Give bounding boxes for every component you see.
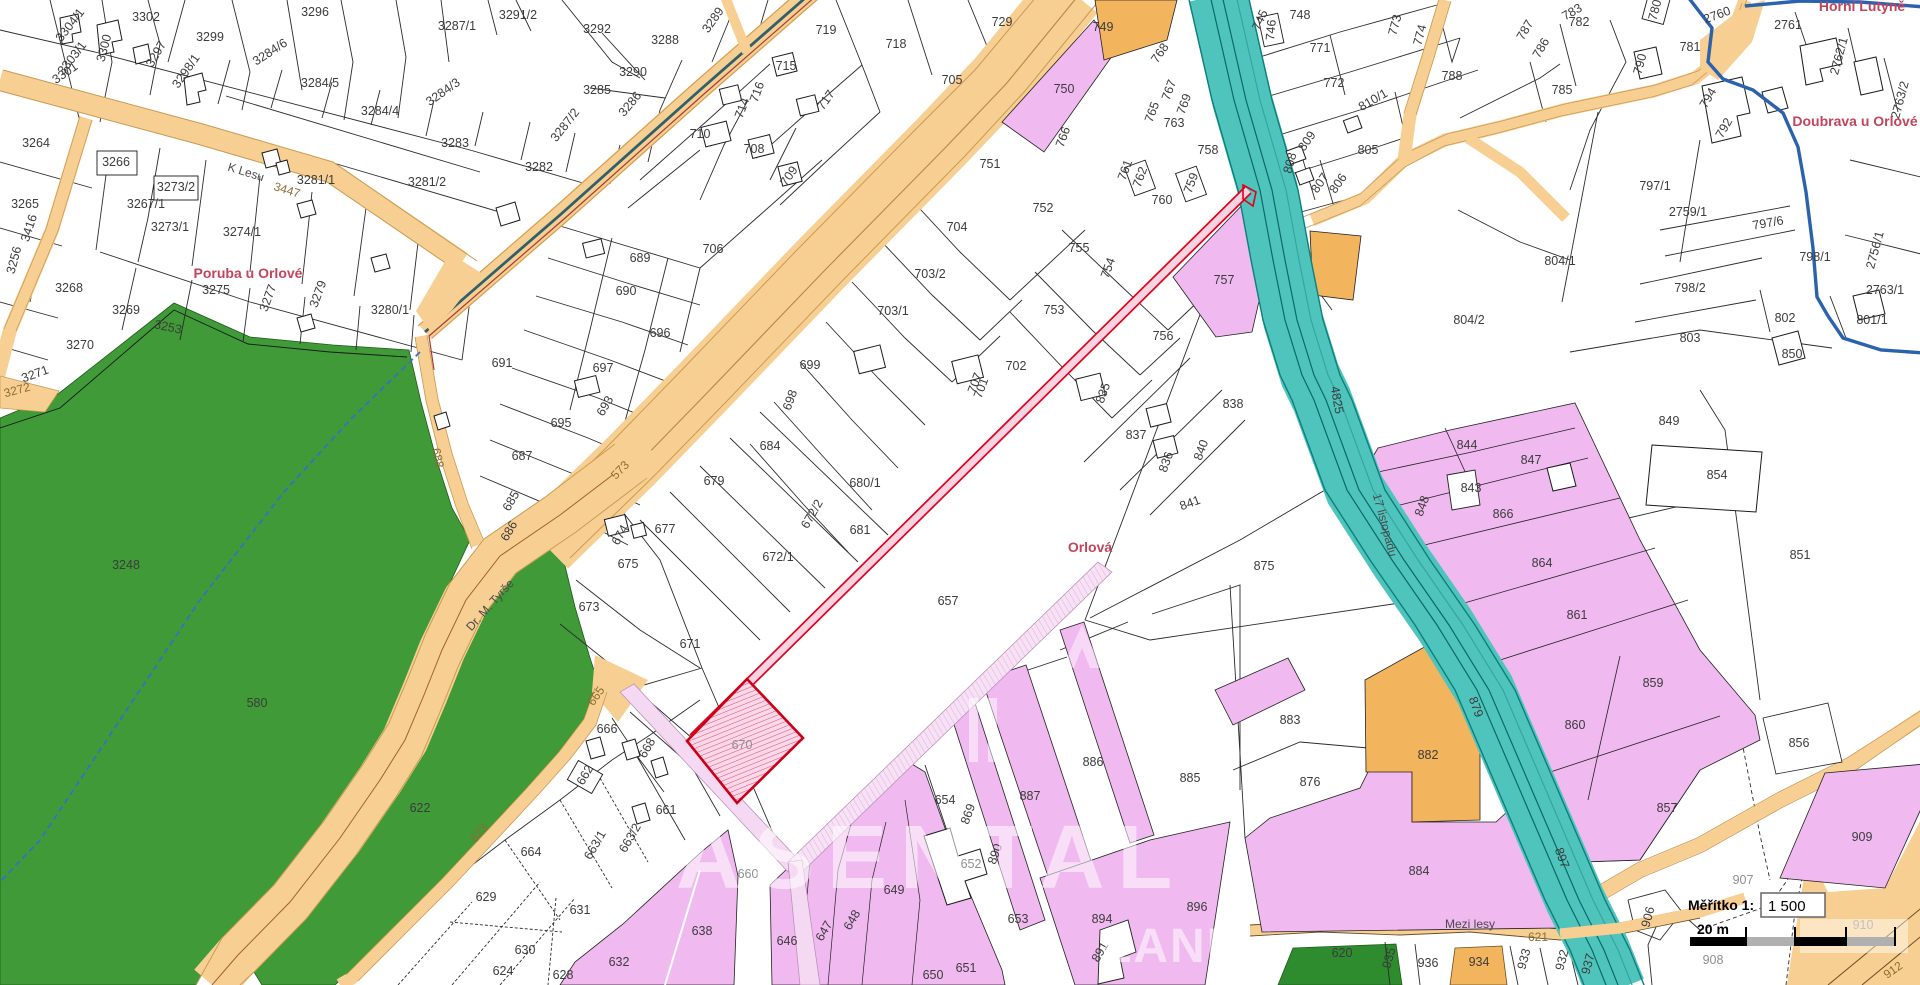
svg-text:ASENTAL: ASENTAL [676, 808, 1185, 908]
svg-text:719: 719 [816, 23, 837, 37]
svg-text:882: 882 [1418, 748, 1439, 762]
svg-text:657: 657 [938, 594, 959, 608]
svg-text:838: 838 [1223, 397, 1244, 411]
svg-text:843: 843 [1461, 481, 1482, 495]
svg-text:Mezi lesy: Mezi lesy [1445, 917, 1495, 931]
svg-text:691: 691 [492, 356, 513, 370]
svg-text:3267/1: 3267/1 [127, 197, 165, 211]
svg-text:753: 753 [1044, 303, 1065, 317]
svg-text:781: 781 [1680, 40, 1701, 54]
svg-text:3292: 3292 [583, 22, 611, 36]
svg-text:3302: 3302 [132, 10, 160, 24]
svg-text:804/2: 804/2 [1453, 313, 1484, 327]
svg-text:LAND: LAND [1102, 920, 1243, 973]
svg-text:3274/1: 3274/1 [223, 225, 261, 239]
svg-text:896: 896 [1187, 900, 1208, 914]
svg-text:748: 748 [1290, 8, 1311, 22]
svg-text:687: 687 [512, 449, 533, 463]
svg-text:3270: 3270 [66, 338, 94, 352]
svg-text:651: 651 [956, 961, 977, 975]
svg-text:621: 621 [1528, 930, 1548, 944]
svg-text:750: 750 [1054, 82, 1075, 96]
svg-text:3288: 3288 [651, 33, 679, 47]
svg-text:680/1: 680/1 [849, 476, 880, 490]
svg-text:3296: 3296 [301, 5, 329, 19]
svg-text:860: 860 [1565, 718, 1586, 732]
svg-text:798/2: 798/2 [1674, 281, 1705, 295]
svg-text:844: 844 [1457, 438, 1478, 452]
svg-text:3273/1: 3273/1 [151, 220, 189, 234]
svg-text:3265: 3265 [11, 197, 39, 211]
svg-text:3280/1: 3280/1 [371, 303, 409, 317]
svg-text:805: 805 [1358, 143, 1379, 157]
svg-text:3269: 3269 [112, 303, 140, 317]
svg-text:677: 677 [655, 522, 676, 536]
svg-text:851: 851 [1790, 548, 1811, 562]
svg-text:802: 802 [1775, 311, 1796, 325]
svg-text:3291/2: 3291/2 [499, 8, 537, 22]
svg-text:650: 650 [923, 968, 944, 982]
svg-text:3290: 3290 [619, 65, 647, 79]
svg-text:909: 909 [1852, 830, 1873, 844]
svg-text:Měřítko 1:: Měřítko 1: [1688, 897, 1754, 913]
svg-text:886: 886 [1083, 755, 1104, 769]
svg-text:850: 850 [1782, 347, 1803, 361]
svg-text:875: 875 [1254, 559, 1275, 573]
svg-text:671: 671 [680, 637, 701, 651]
svg-text:798/1: 798/1 [1799, 250, 1830, 264]
svg-text:675: 675 [618, 557, 639, 571]
svg-text:632: 632 [609, 955, 630, 969]
svg-text:837: 837 [1126, 428, 1147, 442]
svg-text:3299: 3299 [196, 30, 224, 44]
svg-text:3275: 3275 [202, 283, 230, 297]
svg-text:751: 751 [980, 157, 1001, 171]
svg-text:3264: 3264 [22, 136, 50, 150]
svg-text:703/2: 703/2 [914, 267, 945, 281]
svg-text:3281/1: 3281/1 [297, 173, 335, 187]
svg-text:661: 661 [656, 803, 677, 817]
svg-text:884: 884 [1409, 864, 1430, 878]
svg-text:772: 772 [1324, 76, 1345, 90]
svg-text:887: 887 [1020, 789, 1041, 803]
svg-text:934: 934 [1469, 955, 1490, 969]
svg-text:3287/1: 3287/1 [438, 19, 476, 33]
svg-text:703/1: 703/1 [877, 304, 908, 318]
svg-text:664: 664 [521, 845, 542, 859]
svg-text:876: 876 [1300, 775, 1321, 789]
svg-text:3273/2: 3273/2 [157, 180, 195, 194]
svg-text:638: 638 [692, 924, 713, 938]
svg-text:804/1: 804/1 [1544, 254, 1575, 268]
svg-text:856: 856 [1789, 736, 1810, 750]
svg-text:710: 710 [690, 127, 711, 141]
svg-text:654: 654 [935, 793, 956, 807]
svg-text:631: 631 [570, 903, 591, 917]
svg-text:3281/2: 3281/2 [408, 175, 446, 189]
svg-text:646: 646 [777, 934, 798, 948]
svg-text:673: 673 [579, 600, 600, 614]
svg-text:705: 705 [942, 73, 963, 87]
svg-text:3284/5: 3284/5 [301, 76, 339, 90]
svg-text:653: 653 [1008, 912, 1029, 926]
svg-text:622: 622 [410, 801, 431, 815]
svg-text:696: 696 [650, 326, 671, 340]
svg-text:708: 708 [744, 142, 765, 156]
svg-text:702: 702 [1006, 359, 1027, 373]
svg-text:3285: 3285 [583, 83, 611, 97]
svg-text:788: 788 [1442, 69, 1463, 83]
svg-text:628: 628 [553, 968, 574, 982]
svg-text:699: 699 [800, 358, 821, 372]
svg-text:758: 758 [1198, 143, 1219, 157]
svg-text:3268: 3268 [55, 281, 83, 295]
svg-text:797/1: 797/1 [1639, 179, 1670, 193]
svg-text:864: 864 [1532, 556, 1553, 570]
svg-text:580: 580 [247, 696, 268, 710]
svg-text:1 500: 1 500 [1768, 898, 1806, 915]
svg-text:630: 630 [515, 943, 536, 957]
svg-text:715: 715 [776, 59, 797, 73]
svg-text:755: 755 [1069, 241, 1090, 255]
svg-text:803: 803 [1680, 331, 1701, 345]
svg-text:936: 936 [1418, 956, 1439, 970]
svg-text:854: 854 [1707, 468, 1728, 482]
svg-text:3283: 3283 [441, 136, 469, 150]
svg-text:746: 746 [1263, 19, 1279, 41]
svg-text:670: 670 [732, 738, 753, 752]
svg-text:704: 704 [947, 220, 968, 234]
svg-text:Poruba u Orlové: Poruba u Orlové [194, 265, 303, 281]
svg-text:756: 756 [1153, 329, 1174, 343]
svg-text:718: 718 [886, 37, 907, 51]
svg-text:20 m: 20 m [1697, 921, 1729, 937]
svg-text:689: 689 [630, 251, 651, 265]
svg-text:885: 885 [1180, 771, 1201, 785]
svg-text:2759/1: 2759/1 [1669, 205, 1707, 219]
svg-text:859: 859 [1643, 676, 1664, 690]
svg-text:624: 624 [493, 964, 514, 978]
svg-text:620: 620 [1332, 946, 1353, 960]
svg-text:861: 861 [1567, 608, 1588, 622]
svg-text:3282: 3282 [525, 160, 553, 174]
svg-text:907: 907 [1733, 873, 1754, 887]
svg-text:785: 785 [1552, 83, 1573, 97]
svg-text:681: 681 [850, 523, 871, 537]
svg-text:760: 760 [1152, 193, 1173, 207]
svg-text:3248: 3248 [112, 558, 140, 572]
svg-text:801/1: 801/1 [1856, 313, 1887, 327]
svg-text:666: 666 [597, 722, 618, 736]
svg-text:Orlová: Orlová [1068, 539, 1113, 555]
svg-text:757: 757 [1214, 273, 1235, 287]
svg-text:690: 690 [616, 284, 637, 298]
svg-text:684: 684 [760, 439, 781, 453]
svg-text:752: 752 [1033, 201, 1054, 215]
svg-text:749: 749 [1093, 20, 1114, 34]
svg-text:2761: 2761 [1774, 18, 1802, 32]
svg-text:847: 847 [1521, 453, 1542, 467]
svg-text:Doubrava u Orlové: Doubrava u Orlové [1792, 113, 1917, 129]
svg-text:2763/1: 2763/1 [1866, 283, 1904, 297]
svg-text:782: 782 [1569, 15, 1590, 29]
svg-text:3284/4: 3284/4 [361, 104, 399, 118]
svg-text:763: 763 [1164, 116, 1185, 130]
svg-text:697: 697 [593, 361, 614, 375]
svg-text:Horní Lutyně: Horní Lutyně [1819, 0, 1906, 14]
svg-text:629: 629 [476, 890, 497, 904]
svg-text:729: 729 [992, 15, 1013, 29]
svg-text:849: 849 [1659, 414, 1680, 428]
svg-text:672/1: 672/1 [762, 550, 793, 564]
svg-text:866: 866 [1493, 507, 1514, 521]
svg-text:883: 883 [1280, 713, 1301, 727]
svg-text:908: 908 [1703, 953, 1724, 967]
svg-text:679: 679 [704, 474, 725, 488]
svg-text:857: 857 [1657, 801, 1678, 815]
svg-text:695: 695 [551, 416, 572, 430]
svg-text:771: 771 [1310, 41, 1331, 55]
svg-text:3266: 3266 [102, 155, 130, 169]
svg-text:706: 706 [703, 242, 724, 256]
